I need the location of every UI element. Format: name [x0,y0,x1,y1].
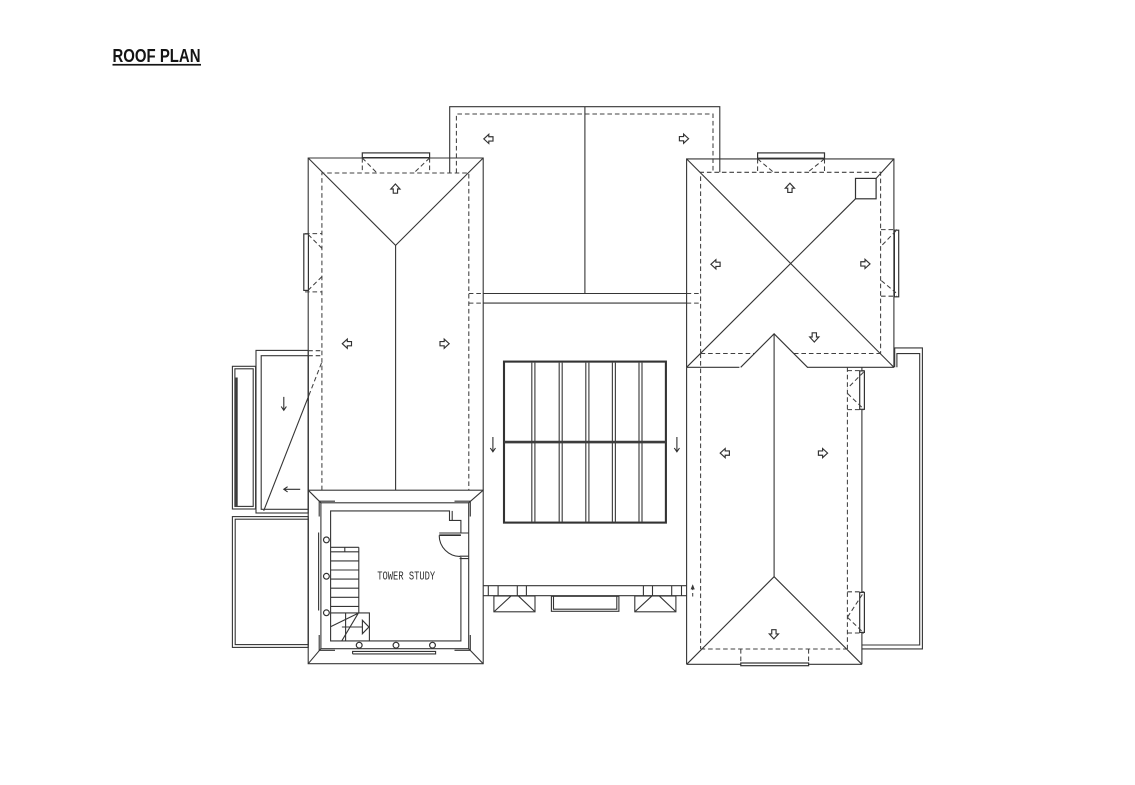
svg-text:TOWER STUDY: TOWER STUDY [377,570,435,584]
svg-text:ROOF PLAN: ROOF PLAN [113,45,201,66]
